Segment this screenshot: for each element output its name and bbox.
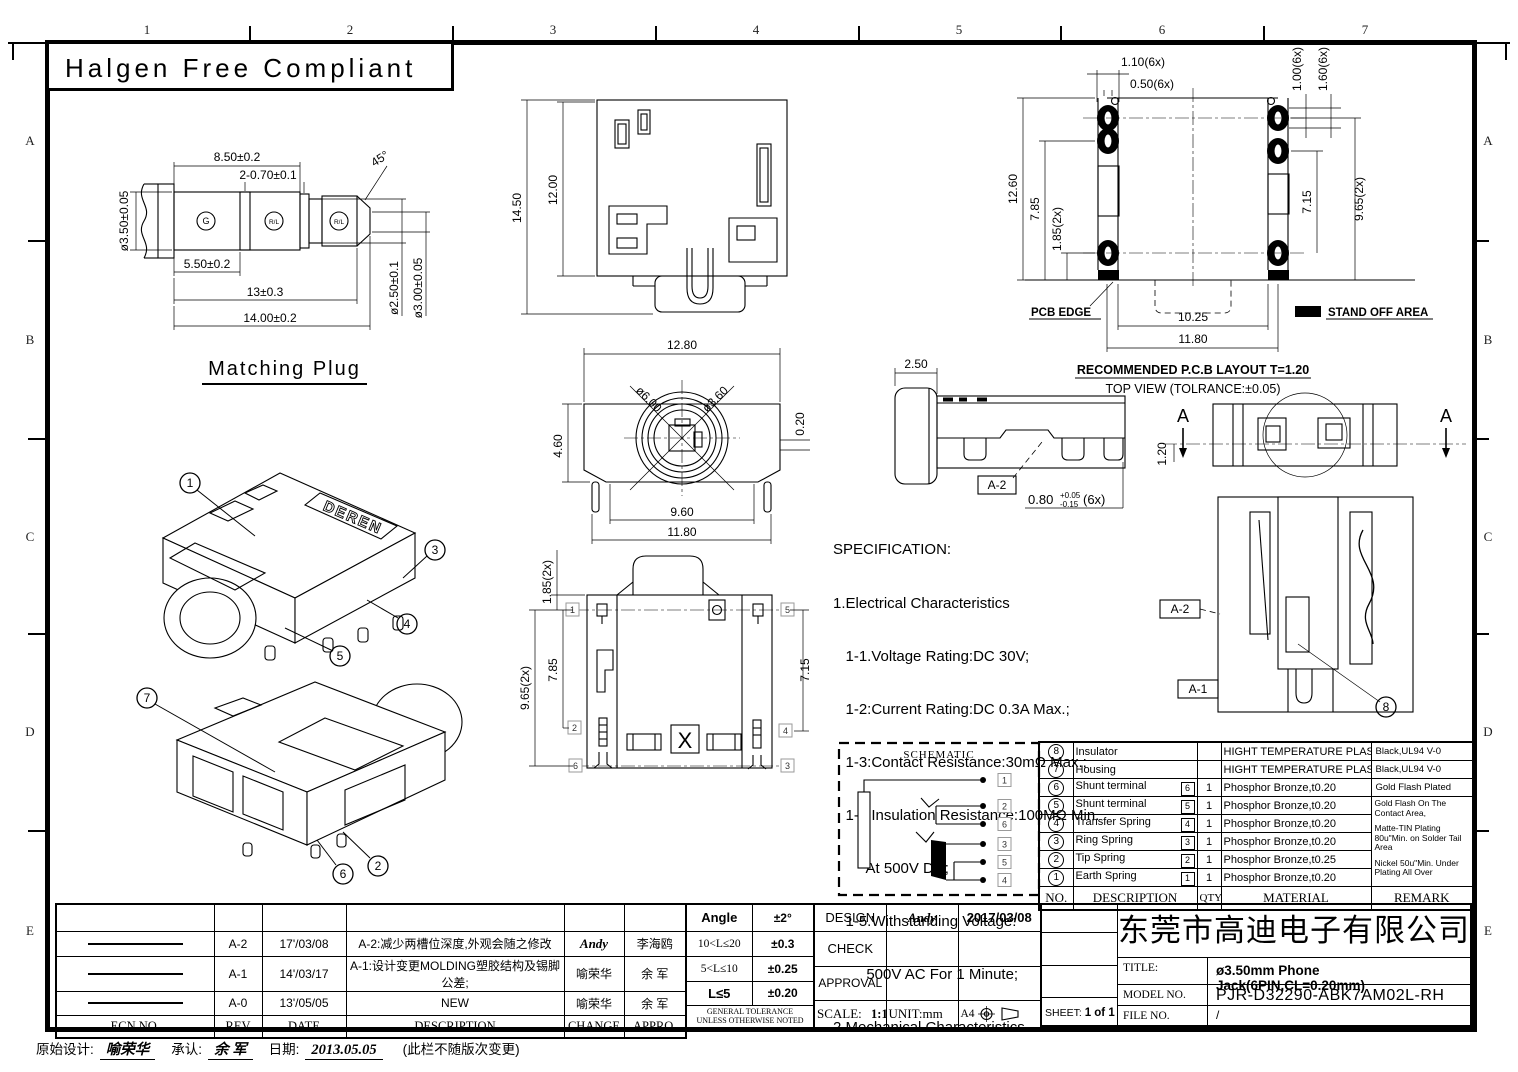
bottom-terminal-view: X 1 2 6 5 4 3 1.85(2x) 9.65(2x) 7.85 7.1… xyxy=(513,520,818,797)
table-row: SCALE: 1:1 UNIT:mm A4 xyxy=(814,1000,1041,1028)
dim-14-50: 14.50 xyxy=(510,193,524,223)
item-qty: 1 xyxy=(1197,869,1221,887)
remark-line: Matte-TIN Plating 80u"Min. on Solder Tai… xyxy=(1375,824,1470,853)
paper-size: A4 xyxy=(961,1008,975,1020)
upper-middle-view: 14.50 12.00 xyxy=(505,88,805,340)
row-label: E xyxy=(1478,923,1498,939)
drawing-sheet: 1 2 3 4 5 6 7 A B C D E A B C D E xyxy=(0,0,1518,1072)
empty-cell xyxy=(1042,933,1117,966)
design-signature: Andy xyxy=(886,904,958,931)
title-block: SHEET: 1 of 1 东莞市高迪电子有限公司 TITLE: ø3.50mm… xyxy=(1040,903,1472,1027)
rev-desc: NEW xyxy=(346,991,564,1015)
body-outline xyxy=(895,388,1125,484)
row-label: A xyxy=(1478,133,1498,149)
tol-note-1: GENERAL TOLERANCE xyxy=(689,1007,811,1016)
dim-dia-600: ø6.00 xyxy=(633,383,665,415)
rev-desc: A-1:设计变更MOLDING塑胶结构及锡脚公差; xyxy=(346,956,564,991)
item-remark: Gold Flash Plated xyxy=(1371,779,1473,797)
dim-dia-250: ø2.50±0.1 xyxy=(387,261,401,315)
spec-line: 1-2:Current Rating:DC 0.3A Max.; xyxy=(833,701,1185,719)
approval-label: APPROVAL xyxy=(814,966,886,1000)
title-value: ø3.50mm Phone Jack(6PIN,CL=0.20mm) xyxy=(1208,958,1470,984)
col-appro: APPRO. xyxy=(624,1015,686,1038)
footer-label-approver: 承认: xyxy=(161,1038,202,1058)
ecn-placeholder xyxy=(88,1002,183,1004)
table-row: A-0 13'/05/05 NEW 喻荣华 余 军 xyxy=(56,991,686,1015)
row-label: D xyxy=(1478,724,1498,740)
row-label: D xyxy=(20,724,40,740)
x-mark: X xyxy=(678,728,693,753)
footer-remark: (此栏不随版次变更) xyxy=(389,1038,520,1058)
col-change: CHANGE xyxy=(564,1015,624,1038)
rev-id: A-0 xyxy=(214,991,262,1015)
dim-11-80: 11.80 xyxy=(1178,332,1207,346)
iso-body xyxy=(163,473,415,660)
approval-date xyxy=(958,966,1041,1000)
col-description: DESCRIPTION xyxy=(346,1015,564,1038)
footer-note: 原始设计: 喻荣华 承认: 余 军 日期: 2013.05.05 (此栏不随版次… xyxy=(36,1038,520,1060)
item-tag: 4 xyxy=(1181,818,1195,832)
title-block-right: 东莞市高迪电子有限公司 TITLE: ø3.50mm Phone Jack(6P… xyxy=(1118,905,1470,1025)
rev-appro: 余 军 xyxy=(624,991,686,1015)
tolerance-table: Angle ±2° 10<L≤20 ±0.3 5<L≤10 ±0.25 L≤5 … xyxy=(685,903,815,1029)
dim-1-85: 1.85(2x) xyxy=(540,560,554,604)
item-no: 8 xyxy=(1048,744,1064,760)
item-desc: Insulator xyxy=(1073,742,1197,761)
item-material: Phosphor Bronze,t0.20 xyxy=(1221,815,1371,833)
remark-line: Gold Flash On The Contact Area, xyxy=(1375,799,1470,818)
footer-date-value: 2013.05.05 xyxy=(305,1042,382,1060)
ecn-placeholder xyxy=(88,973,183,975)
row-label: E xyxy=(20,923,40,939)
dim-7-85: 7.85 xyxy=(546,658,560,682)
dim-dia-350: ø3.50±0.05 xyxy=(117,190,131,251)
empty-cell xyxy=(1042,966,1117,998)
dim-dia-300: ø3.00±0.05 xyxy=(411,257,425,318)
item-remark: Black,UL94 V-0 xyxy=(1371,761,1473,779)
dim-0-80-count: (6x) xyxy=(1083,492,1105,507)
scale-value: 1:1 xyxy=(865,1007,886,1021)
dim-7-15: 7.15 xyxy=(1300,190,1314,214)
schematic-title: SCHEMATIC xyxy=(903,749,974,761)
dim-9-65: 9.65(2x) xyxy=(1352,177,1366,221)
matching-plug-view: G R/L R/L 8.50±0.2 2-0.70±0.1 45° ø3.50±… xyxy=(110,120,482,370)
item-desc: Shunt terminal xyxy=(1076,798,1147,810)
rev-date: 13'/05/05 xyxy=(262,991,346,1015)
dim-0-50: 0.50(6x) xyxy=(1130,77,1174,91)
item-material: Phosphor Bronze,t0.20 xyxy=(1221,833,1371,851)
file-label: FILE NO. xyxy=(1118,1006,1208,1025)
standoff-label: STAND OFF AREA xyxy=(1328,307,1428,319)
col-label: 1 xyxy=(137,22,157,38)
halogen-free-banner: Halgen Free Compliant xyxy=(46,41,454,91)
matching-plug-title: Matching Plug xyxy=(202,358,367,385)
table-row: 6 Shunt terminal6 1 Phosphor Bronze,t0.2… xyxy=(1039,779,1473,797)
item-desc: Earth Spring xyxy=(1076,870,1137,882)
item-qty: 1 xyxy=(1197,779,1221,797)
item-tag: 1 xyxy=(1181,872,1195,886)
item-tag: 5 xyxy=(1181,800,1195,814)
model-value: PJR-D32290-ABK7AM02L-RH xyxy=(1208,985,1470,1005)
dim-groove: 2-0.70±0.1 xyxy=(239,168,297,182)
tol-range: L≤5 xyxy=(686,981,752,1005)
sheet-cell: SHEET: 1 of 1 xyxy=(1042,998,1117,1025)
schematic-pin-2: 2 xyxy=(1002,802,1007,812)
revision-table: A-2 17'/03/08 A-2:减少两槽位深度,外观会随之修改 Andy 李… xyxy=(55,903,687,1039)
pcb-caption-1: RECOMMENDED P.C.B LAYOUT T=1.20 xyxy=(1077,363,1309,377)
section-arrow-a-right: A xyxy=(1440,406,1452,426)
table-row: 5<L≤10 ±0.25 xyxy=(686,956,814,981)
table-row: DESIGN Andy 2017/03/08 xyxy=(814,904,1041,931)
plug-rl2-label: R/L xyxy=(334,219,345,226)
item-desc: Tip Spring xyxy=(1076,852,1126,864)
dim-1-10: 1.10(6x) xyxy=(1121,55,1165,69)
dim-2-50: 2.50 xyxy=(904,357,928,371)
item-qty: 1 xyxy=(1197,815,1221,833)
row-label: B xyxy=(20,332,40,348)
pin-tag-6: 6 xyxy=(573,761,578,771)
dim-12-00: 12.00 xyxy=(546,175,560,205)
schematic-circuit xyxy=(858,774,1011,887)
dim-1-00: 1.00(6x) xyxy=(1290,47,1304,91)
table-row xyxy=(56,904,686,931)
tol-note-2: UNLESS OTHERWISE NOTED xyxy=(689,1016,811,1025)
tol-value: ±2° xyxy=(752,904,814,931)
plug-dimensions xyxy=(130,162,430,330)
pin-tag-3: 3 xyxy=(785,761,790,771)
rev-id: A-2 xyxy=(214,931,262,956)
col-label: 3 xyxy=(543,22,563,38)
item-no: 4 xyxy=(1048,816,1064,832)
table-row: 10<L≤20 ±0.3 xyxy=(686,931,814,956)
file-row: FILE NO. / xyxy=(1118,1006,1470,1025)
dim-45deg: 45° xyxy=(368,148,391,170)
dim-12-80: 12.80 xyxy=(667,338,697,352)
projection-symbol-icon xyxy=(978,1006,1024,1022)
unit-label: UNIT:mm xyxy=(886,1000,958,1028)
table-row: L≤5 ±0.20 xyxy=(686,981,814,1005)
item-material: Phosphor Bronze,t0.20 xyxy=(1221,869,1371,887)
balloon-2-num: 2 xyxy=(375,859,382,873)
item-qty xyxy=(1197,742,1221,761)
item-remark: Black,UL94 V-0 xyxy=(1371,742,1473,761)
table-row: CHECK xyxy=(814,931,1041,966)
rev-change: 喻荣华 xyxy=(564,991,624,1015)
table-row: 7 Housing HIGHT TEMPERATURE PLASTIC Blac… xyxy=(1039,761,1473,779)
sheet-label: SHEET: xyxy=(1045,1007,1082,1019)
isometric-bottom-view: 7 6 2 xyxy=(115,660,470,902)
dim-7-85: 7.85 xyxy=(1028,197,1042,221)
merged-remark: Gold Flash On The Contact Area, Matte-TI… xyxy=(1371,797,1473,887)
tol-value: ±0.3 xyxy=(752,931,814,956)
section-arrows xyxy=(1174,428,1450,462)
dim-9-65: 9.65(2x) xyxy=(518,666,532,710)
item-desc: Housing xyxy=(1073,761,1197,779)
pcb-edge-label: PCB EDGE xyxy=(1031,307,1091,319)
item-qty: 1 xyxy=(1197,851,1221,869)
col-ecn: ECN NO. xyxy=(56,1015,214,1038)
section-cut-top xyxy=(1163,393,1466,477)
item-desc: Shunt terminal xyxy=(1076,780,1147,792)
dim-5-50: 5.50±0.2 xyxy=(184,257,231,271)
schematic-view: SCHEMATIC 1 2 6 3 5 4 xyxy=(836,740,1042,898)
item-qty xyxy=(1197,761,1221,779)
spec-line: SPECIFICATION: xyxy=(833,541,1185,559)
schematic-pin-4: 4 xyxy=(1002,876,1007,886)
col-label: 2 xyxy=(340,22,360,38)
model-label: MODEL NO. xyxy=(1118,985,1208,1005)
remark-line: Nickel 50u"Min. Under Plating All Over xyxy=(1375,859,1470,878)
check-date xyxy=(958,931,1041,966)
materials-table: 8 Insulator HIGHT TEMPERATURE PLASTIC Bl… xyxy=(1038,741,1474,911)
col-rev: REV xyxy=(214,1015,262,1038)
footer-label-date: 日期: xyxy=(259,1038,300,1058)
schematic-pin-3: 3 xyxy=(1002,840,1007,850)
col-label: 7 xyxy=(1355,22,1375,38)
tol-value: ±0.25 xyxy=(752,956,814,981)
body-outline xyxy=(584,380,810,512)
col-label: 5 xyxy=(949,22,969,38)
plug-rl1-label: R/L xyxy=(269,219,280,226)
item-qty: 1 xyxy=(1197,797,1221,815)
spec-line: 1-1.Voltage Rating:DC 30V; xyxy=(833,648,1185,666)
balloon-7-num: 7 xyxy=(144,691,151,705)
dim-0-20: 0.20 xyxy=(793,412,807,436)
sheet-value: 1 of 1 xyxy=(1085,1007,1115,1019)
section-views: A A 1.20 A-2 A-1 8 xyxy=(1158,382,1472,722)
table-row: GENERAL TOLERANCE UNLESS OTHERWISE NOTED xyxy=(686,1005,814,1028)
balloon-4-num: 4 xyxy=(404,617,411,631)
rev-date: 17'/03/08 xyxy=(262,931,346,956)
pin-tag-5: 5 xyxy=(785,605,790,615)
plug-ground-label: G xyxy=(202,216,209,226)
table-row: 5 Shunt terminal5 1 Phosphor Bronze,t0.2… xyxy=(1039,797,1473,815)
row-label: A xyxy=(20,133,40,149)
rev-date: 14'/03/17 xyxy=(262,956,346,991)
rev-change: Andy xyxy=(564,931,624,956)
dim-10-25: 10.25 xyxy=(1178,310,1208,324)
dim-9-60: 9.60 xyxy=(670,505,694,519)
halogen-free-text: Halgen Free Compliant xyxy=(49,44,451,84)
balloon-8-num: 8 xyxy=(1383,700,1390,714)
company-name: 东莞市高迪电子有限公司 xyxy=(1118,905,1470,958)
schematic-pin-1: 1 xyxy=(1002,776,1007,786)
iso-body xyxy=(177,682,462,858)
item-no: 6 xyxy=(1048,780,1064,796)
col-label: 6 xyxy=(1152,22,1172,38)
rev-change: 喻荣华 xyxy=(564,956,624,991)
dim-dia-360: ø3.60 xyxy=(699,383,731,415)
footer-label-designer: 原始设计: xyxy=(36,1038,94,1058)
item-material: Phosphor Bronze,t0.25 xyxy=(1221,851,1371,869)
a2-tag: A-2 xyxy=(988,478,1007,492)
footer-approver-signature: 余 军 xyxy=(208,1038,253,1060)
isometric-top-view: DEREN 1 3 4 5 xyxy=(115,438,470,690)
spec-line: 1.Electrical Characteristics xyxy=(833,595,1185,613)
item-material: Phosphor Bronze,t0.20 xyxy=(1221,797,1371,815)
item-tag: 6 xyxy=(1181,782,1195,796)
tol-range: 10<L≤20 xyxy=(686,931,752,956)
dim-14-00: 14.00±0.2 xyxy=(243,311,297,325)
dim-1-60: 1.60(6x) xyxy=(1316,47,1330,91)
a1-tag: A-1 xyxy=(1189,682,1208,696)
table-row: A-2 17'/03/08 A-2:减少两槽位深度,外观会随之修改 Andy 李… xyxy=(56,931,686,956)
item-tag: 2 xyxy=(1181,854,1195,868)
item-desc: Transfer Spring xyxy=(1076,816,1151,828)
check-signature xyxy=(886,931,958,966)
design-date: 2017/03/08 xyxy=(958,904,1041,931)
pin-tag-4: 4 xyxy=(783,726,788,736)
row-label: B xyxy=(1478,332,1498,348)
table-row: A-1 14'/03/17 A-1:设计变更MOLDING塑胶结构及锡脚公差; … xyxy=(56,956,686,991)
table-header-row: ECN NO. REV DATE DESCRIPTION CHANGE APPR… xyxy=(56,1015,686,1038)
dim-0-80-plus: +0.05 xyxy=(1060,491,1081,500)
check-label: CHECK xyxy=(814,931,886,966)
design-label: DESIGN xyxy=(814,904,886,931)
approval-block: DESIGN Andy 2017/03/08 CHECK APPROVAL SC… xyxy=(813,903,1042,1029)
balloon-6-num: 6 xyxy=(340,867,347,881)
pcb-layout-view: 1.10(6x) 0.50(6x) 1.00(6x) 1.60(6x) 12.6… xyxy=(995,44,1443,402)
item-desc: Ring Spring xyxy=(1076,834,1133,846)
item-material: HIGHT TEMPERATURE PLASTIC xyxy=(1221,761,1371,779)
pin-tag-2: 2 xyxy=(572,723,577,733)
rev-appro: 余 军 xyxy=(624,956,686,991)
tol-value: ±0.20 xyxy=(752,981,814,1005)
footer-designer-signature: 喻荣华 xyxy=(100,1038,156,1060)
dim-13: 13±0.3 xyxy=(247,285,284,299)
dim-1-85: 1.85(2x) xyxy=(1050,207,1064,251)
rev-appro: 李海鸥 xyxy=(624,931,686,956)
file-value: / xyxy=(1208,1006,1470,1025)
tol-range: Angle xyxy=(686,904,752,931)
dim-7-15: 7.15 xyxy=(798,658,812,682)
item-material: Phosphor Bronze,t0.20 xyxy=(1221,779,1371,797)
dim-0-80: 0.80 xyxy=(1028,492,1053,507)
item-tag: 3 xyxy=(1181,836,1195,850)
body-outline xyxy=(597,100,787,312)
item-no: 7 xyxy=(1048,762,1064,778)
model-row: MODEL NO. PJR-D32290-ABK7AM02L-RH xyxy=(1118,985,1470,1006)
rev-id: A-1 xyxy=(214,956,262,991)
item-no: 1 xyxy=(1048,870,1064,886)
empty-cell xyxy=(1042,905,1117,933)
item-no: 3 xyxy=(1048,834,1064,850)
item-no: 2 xyxy=(1048,852,1064,868)
approval-signature xyxy=(886,966,958,1000)
row-label: C xyxy=(1478,529,1498,545)
dim-4-60: 4.60 xyxy=(551,434,565,458)
dim-8-50: 8.50±0.2 xyxy=(214,150,261,164)
title-label: TITLE: xyxy=(1118,958,1208,984)
item-no: 5 xyxy=(1048,798,1064,814)
table-row: 8 Insulator HIGHT TEMPERATURE PLASTIC Bl… xyxy=(1039,742,1473,761)
dim-1-20: 1.20 xyxy=(1155,442,1169,466)
title-block-left: SHEET: 1 of 1 xyxy=(1042,905,1118,1025)
section-cut-bottom xyxy=(1218,497,1413,712)
balloon-3-num: 3 xyxy=(432,543,439,557)
tol-range: 5<L≤10 xyxy=(686,956,752,981)
section-arrow-a-left: A xyxy=(1177,406,1189,426)
item-qty: 1 xyxy=(1197,833,1221,851)
balloon-1-num: 1 xyxy=(187,476,194,490)
row-label: C xyxy=(20,529,40,545)
dim-12-60: 12.60 xyxy=(1006,174,1020,204)
table-row: APPROVAL xyxy=(814,966,1041,1000)
ecn-placeholder xyxy=(88,943,183,945)
scale-label: SCALE: xyxy=(817,1006,862,1021)
schematic-pin-5: 5 xyxy=(1002,858,1007,868)
rev-desc: A-2:减少两槽位深度,外观会随之修改 xyxy=(346,931,564,956)
title-row: TITLE: ø3.50mm Phone Jack(6PIN,CL=0.20mm… xyxy=(1118,958,1470,985)
item-material: HIGHT TEMPERATURE PLASTIC xyxy=(1221,742,1371,761)
col-date: DATE xyxy=(262,1015,346,1038)
schematic-pin-6: 6 xyxy=(1002,820,1007,830)
col-label: 4 xyxy=(746,22,766,38)
table-row: Angle ±2° xyxy=(686,904,814,931)
